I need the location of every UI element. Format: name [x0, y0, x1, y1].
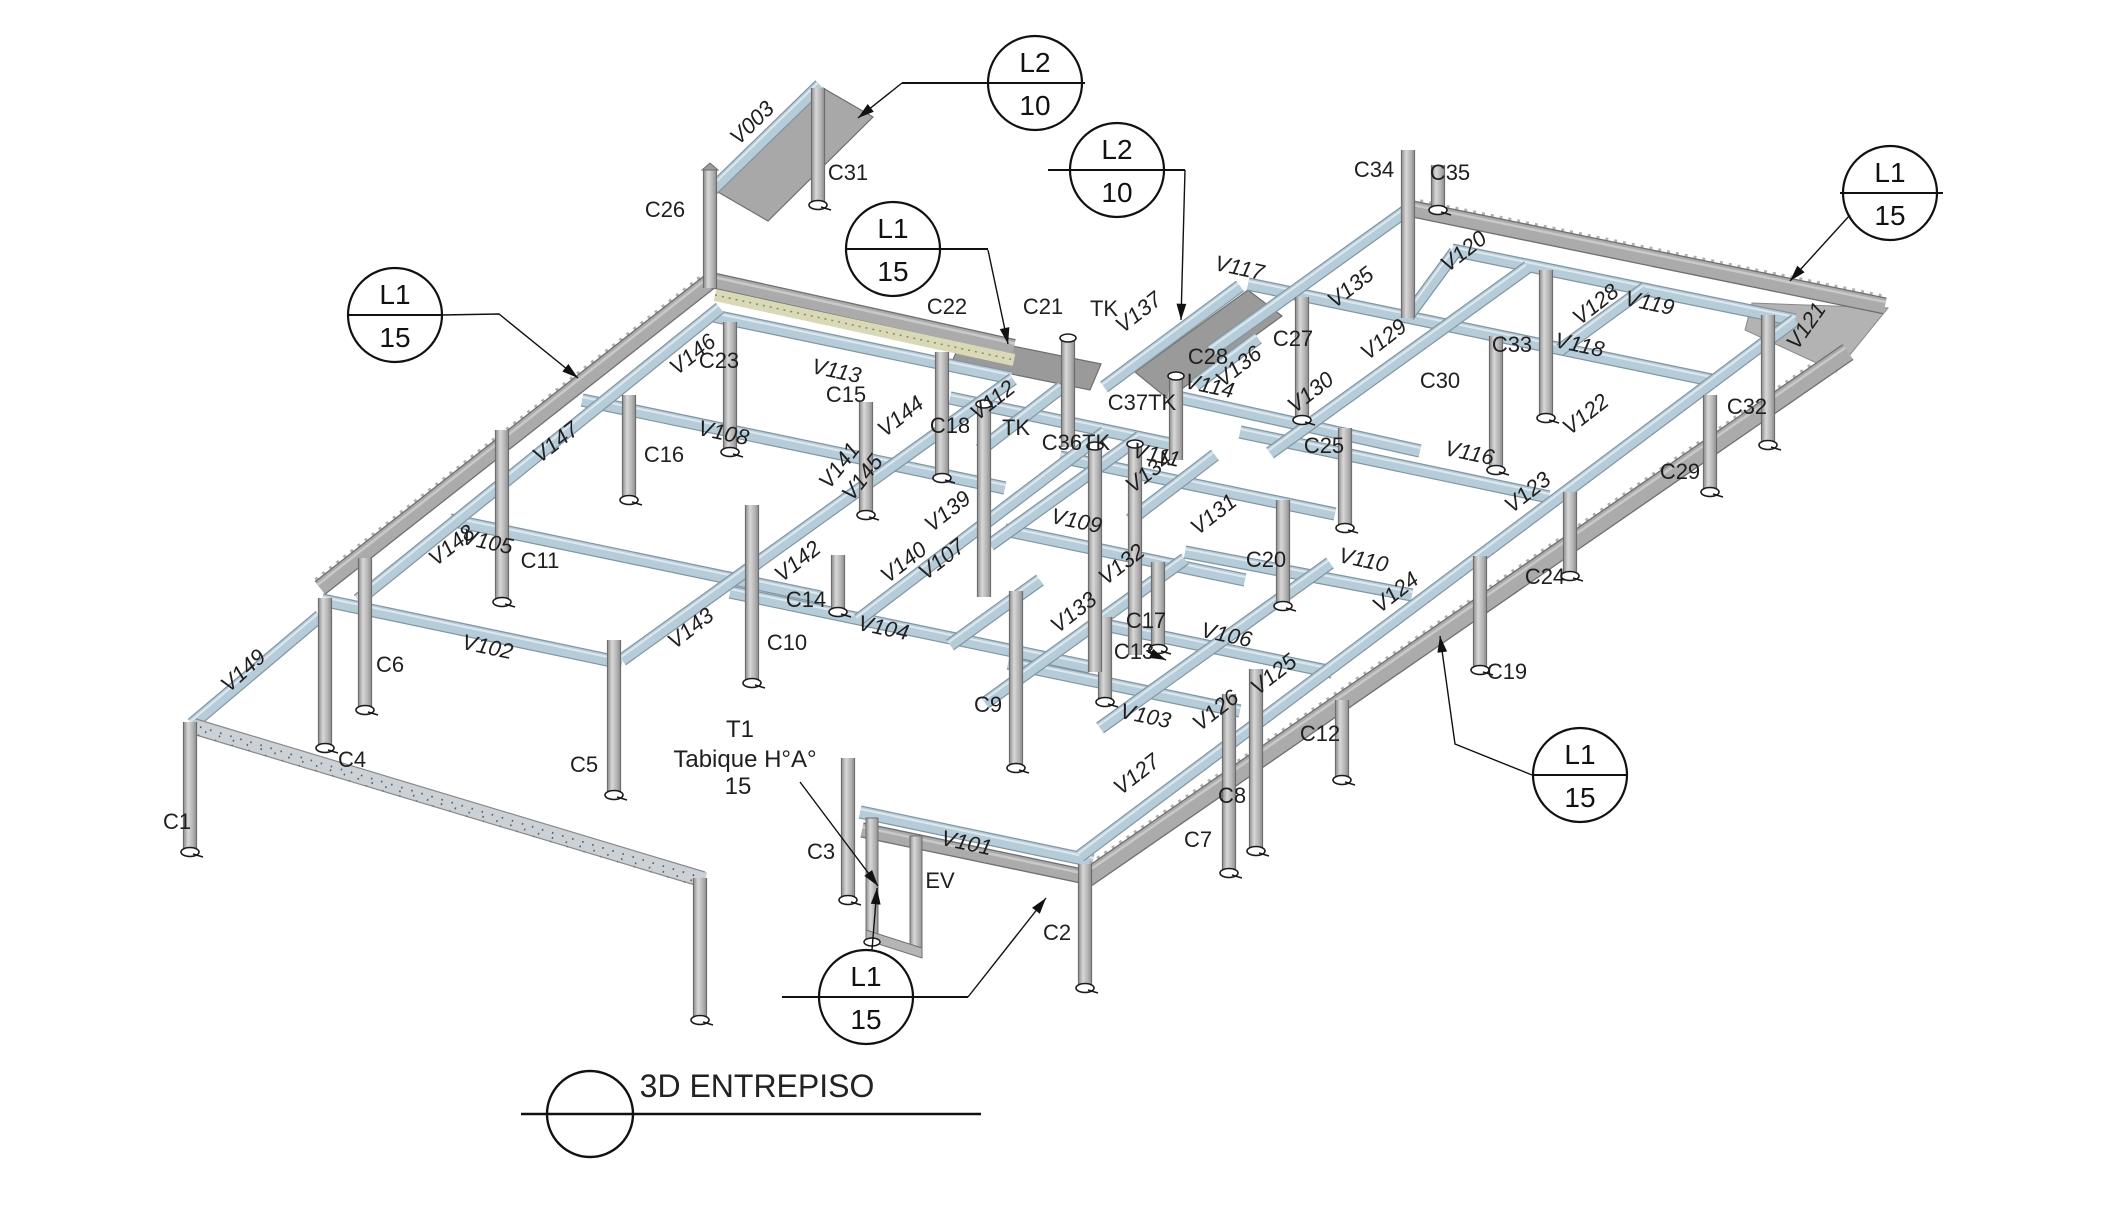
svg-text:C23: C23 — [699, 348, 739, 373]
svg-text:C11: C11 — [521, 548, 560, 573]
svg-text:C37TK: C37TK — [1108, 390, 1177, 415]
svg-text:C31: C31 — [828, 160, 868, 185]
svg-text:C2: C2 — [1043, 920, 1071, 945]
svg-text:C17: C17 — [1126, 608, 1166, 633]
svg-text:C32: C32 — [1727, 394, 1767, 419]
svg-text:C12: C12 — [1300, 721, 1340, 746]
svg-text:C18: C18 — [930, 413, 970, 438]
svg-text:C3: C3 — [807, 839, 835, 864]
svg-text:C29: C29 — [1660, 459, 1700, 484]
svg-text:C24: C24 — [1525, 564, 1565, 589]
svg-text:L1: L1 — [877, 213, 908, 244]
svg-text:10: 10 — [1019, 90, 1050, 121]
svg-text:L2: L2 — [1019, 47, 1050, 78]
svg-text:T1: T1 — [726, 716, 754, 743]
svg-text:C4: C4 — [338, 747, 366, 772]
svg-text:C36TK: C36TK — [1042, 430, 1111, 455]
svg-text:15: 15 — [379, 322, 410, 353]
svg-text:C26: C26 — [645, 197, 685, 222]
svg-text:10: 10 — [1101, 177, 1132, 208]
svg-text:C13: C13 — [1114, 639, 1154, 664]
svg-text:C7: C7 — [1184, 827, 1212, 852]
svg-text:C28: C28 — [1188, 344, 1228, 369]
svg-text:L1: L1 — [850, 961, 881, 992]
svg-text:15: 15 — [725, 773, 752, 800]
svg-text:C19: C19 — [1487, 659, 1527, 684]
svg-text:C21: C21 — [1023, 294, 1063, 319]
svg-text:15: 15 — [1564, 782, 1595, 813]
svg-text:C20: C20 — [1246, 547, 1286, 572]
svg-text:EV: EV — [925, 868, 955, 893]
svg-text:C27: C27 — [1273, 326, 1313, 351]
svg-text:C14: C14 — [786, 587, 826, 612]
svg-text:15: 15 — [1874, 200, 1905, 231]
svg-text:L2: L2 — [1101, 134, 1132, 165]
svg-text:L1: L1 — [1874, 157, 1905, 188]
svg-text:L1: L1 — [379, 279, 410, 310]
svg-text:C25: C25 — [1304, 433, 1344, 458]
svg-text:C8: C8 — [1218, 783, 1246, 808]
svg-text:L1: L1 — [1564, 739, 1595, 770]
svg-text:TK: TK — [1002, 415, 1030, 440]
svg-text:3D ENTREPISO: 3D ENTREPISO — [640, 1068, 875, 1104]
svg-text:C30: C30 — [1420, 368, 1460, 393]
svg-text:C10: C10 — [767, 630, 807, 655]
svg-text:C15: C15 — [826, 382, 866, 407]
svg-text:C22: C22 — [927, 294, 967, 319]
svg-text:C16: C16 — [644, 442, 684, 467]
svg-text:C35: C35 — [1430, 160, 1470, 185]
svg-text:15: 15 — [877, 256, 908, 287]
svg-text:C9: C9 — [974, 692, 1002, 717]
svg-text:C1: C1 — [163, 809, 191, 834]
svg-text:15: 15 — [850, 1004, 881, 1035]
svg-text:C34: C34 — [1354, 157, 1394, 182]
svg-text:C33: C33 — [1492, 332, 1532, 357]
svg-text:C6: C6 — [376, 652, 404, 677]
svg-text:TK: TK — [1090, 296, 1118, 321]
svg-text:Tabique H°A°: Tabique H°A° — [673, 746, 816, 773]
svg-text:C5: C5 — [570, 752, 598, 777]
